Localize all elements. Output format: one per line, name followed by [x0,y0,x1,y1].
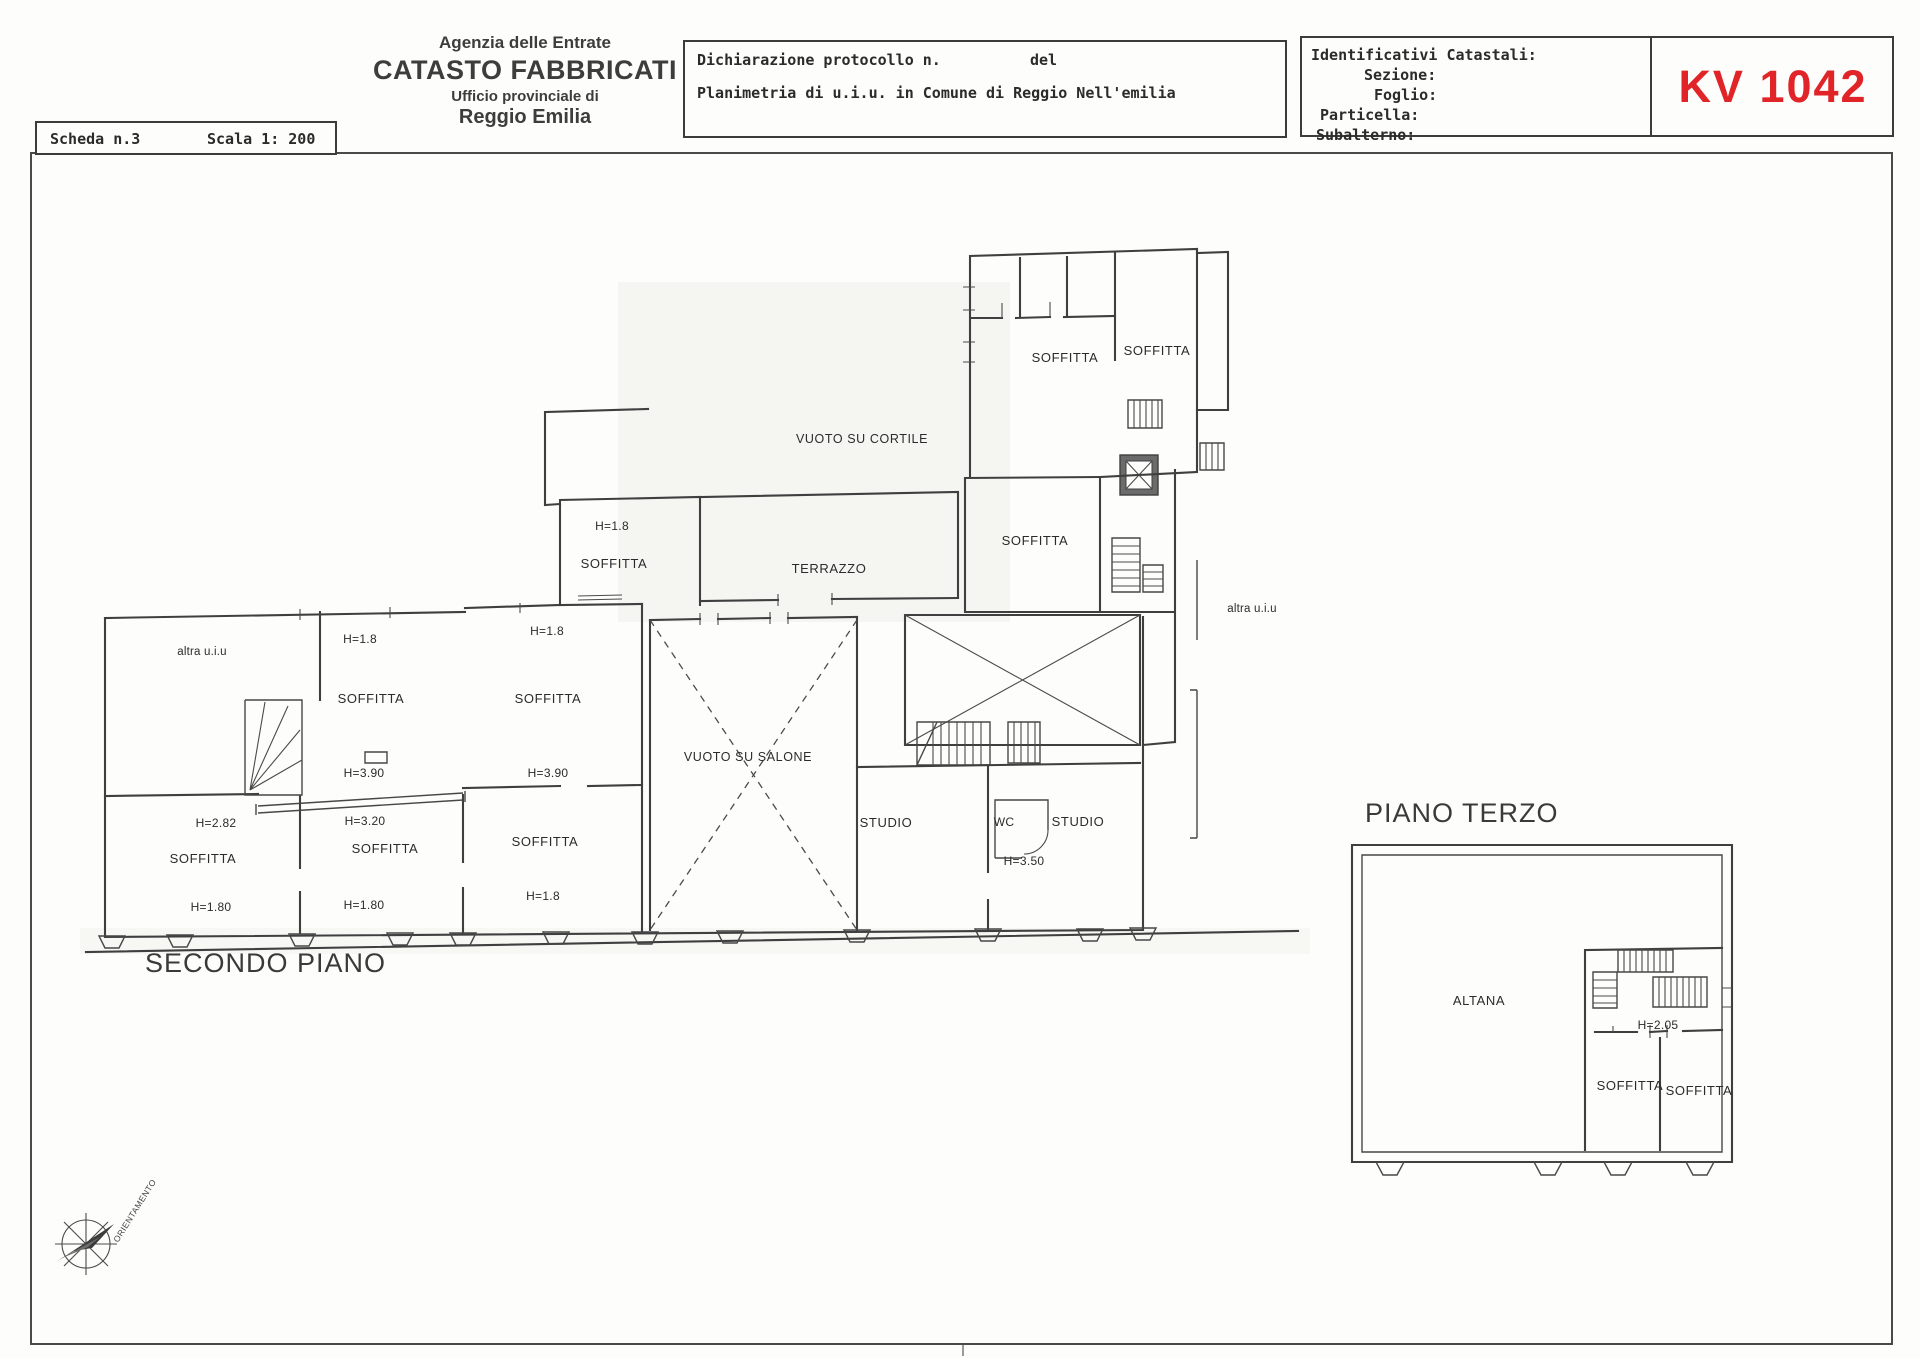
height-label: H=3.90 [528,766,569,780]
document-page: Scheda n.3 Scala 1: 200 Agenzia delle En… [0,0,1920,1358]
room-label: STUDIO [1052,814,1105,829]
third-floor-title: PIANO TERZO [1365,798,1559,828]
scan-shading [80,282,1310,954]
room-label: SOFFITTA [352,841,419,856]
height-label: H=1.8 [595,519,629,533]
room-label: SOFFITTA [1597,1078,1664,1093]
height-label: H=3.90 [344,766,385,780]
height-label: H=1.8 [343,632,377,646]
footings-third-floor [1376,1162,1714,1175]
room-label: STUDIO [860,815,913,830]
room-label: SOFFITTA [338,691,405,706]
third-floor-labels: ALTANA H=2.05 SOFFITTA SOFFITTA [1453,993,1732,1098]
height-label: H=3.20 [345,814,386,828]
room-label: SOFFITTA [515,691,582,706]
room-label: SOFFITTA [1002,533,1069,548]
height-label: H=2.82 [196,816,237,830]
compass-label: ORIENTAMENTO [111,1177,158,1244]
height-label: H=2.05 [1638,1018,1679,1032]
room-label: SOFFITTA [581,556,648,571]
height-label: H=1.80 [344,898,385,912]
room-label: ALTANA [1453,993,1505,1008]
room-label: altra u.i.u [1227,603,1277,615]
height-label: H=1.80 [191,900,232,914]
room-label: VUOTO SU SALONE [684,750,812,764]
room-label: SOFFITTA [170,851,237,866]
second-floor-title: SECONDO PIANO [145,948,386,978]
compass-icon: ORIENTAMENTO [55,1177,158,1275]
height-label: H=1.8 [530,624,564,638]
floorplan-canvas: altra u.i.u H=1.8 SOFFITTA H=3.90 H=1.8 … [0,0,1920,1358]
room-label: WC [994,815,1015,829]
room-label: SOFFITTA [1124,343,1191,358]
height-label: H=1.8 [526,889,560,903]
room-label: VUOTO SU CORTILE [796,432,928,446]
room-label: SOFFITTA [1032,350,1099,365]
room-label: altra u.i.u [177,646,227,658]
third-floor-walls [1352,845,1732,1175]
height-label: H=3.50 [1004,854,1045,868]
room-label: TERRAZZO [792,561,867,576]
room-label: SOFFITTA [1666,1083,1733,1098]
room-label: SOFFITTA [512,834,579,849]
